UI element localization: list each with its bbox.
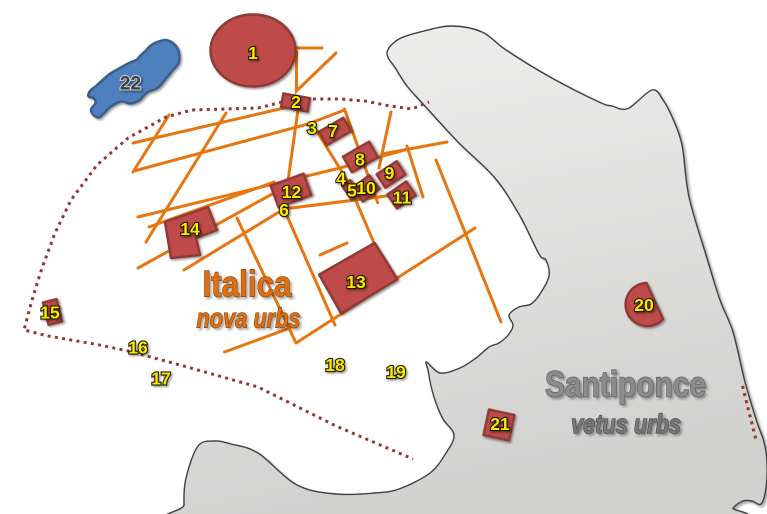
svg-text:vetus urbs: vetus urbs	[571, 409, 681, 439]
svg-text:14: 14	[180, 219, 200, 239]
svg-text:1: 1	[248, 43, 258, 63]
svg-text:4: 4	[336, 169, 346, 189]
svg-text:20: 20	[634, 295, 654, 315]
svg-text:Santiponce: Santiponce	[545, 364, 706, 405]
svg-text:15: 15	[40, 303, 60, 323]
svg-text:8: 8	[355, 150, 365, 170]
svg-text:13: 13	[346, 272, 366, 292]
svg-text:7: 7	[328, 121, 338, 141]
svg-text:nova urbs: nova urbs	[197, 303, 301, 334]
svg-text:18: 18	[325, 355, 345, 375]
svg-text:11: 11	[393, 188, 412, 208]
svg-text:19: 19	[386, 362, 406, 382]
svg-text:16: 16	[128, 338, 148, 358]
svg-text:2: 2	[291, 92, 301, 112]
svg-text:12: 12	[282, 182, 302, 202]
svg-text:9: 9	[385, 163, 395, 183]
svg-text:22: 22	[120, 74, 141, 95]
svg-text:6: 6	[279, 200, 289, 220]
svg-text:Italica: Italica	[203, 264, 292, 305]
svg-text:3: 3	[307, 118, 317, 138]
svg-text:21: 21	[490, 414, 510, 434]
svg-text:17: 17	[151, 369, 170, 389]
svg-text:10: 10	[356, 178, 376, 198]
